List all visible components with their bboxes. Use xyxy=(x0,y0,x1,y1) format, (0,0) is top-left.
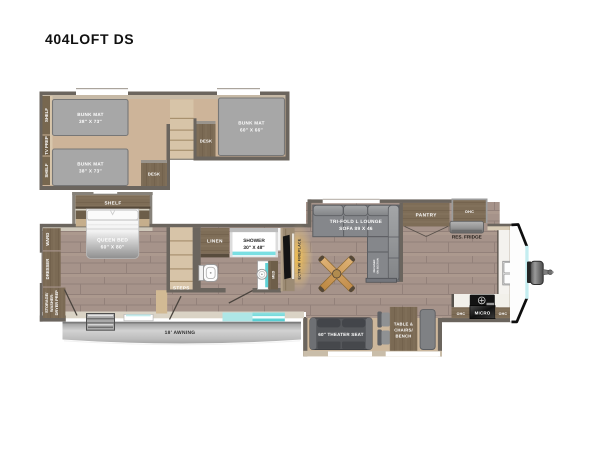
svg-text:MICRO: MICRO xyxy=(475,311,491,316)
svg-text:38″ X 73″: 38″ X 73″ xyxy=(79,169,102,174)
svg-text:SOFA 89 X 46: SOFA 89 X 46 xyxy=(339,226,373,231)
svg-text:OHC: OHC xyxy=(499,312,508,316)
svg-text:SHELF: SHELF xyxy=(44,163,49,177)
svg-text:RES. FRIDGE: RES. FRIDGE xyxy=(452,234,482,239)
svg-text:DRYER PREP: DRYER PREP xyxy=(54,290,59,316)
svg-text:LINEN: LINEN xyxy=(207,238,223,243)
svg-text:QUEEN BED: QUEEN BED xyxy=(97,238,128,244)
svg-text:CHAIRS/: CHAIRS/ xyxy=(394,328,413,333)
svg-text:OHC: OHC xyxy=(465,210,474,214)
svg-text:ECTR W/ FIREPLACE: ECTR W/ FIREPLACE xyxy=(298,238,302,279)
svg-text:DESK: DESK xyxy=(148,172,160,177)
svg-text:DRESSER: DRESSER xyxy=(45,258,50,280)
svg-text:404LOFT DS: 404LOFT DS xyxy=(45,31,134,47)
svg-text:BUNK MAT: BUNK MAT xyxy=(238,121,265,126)
svg-text:38″ X 73″: 38″ X 73″ xyxy=(79,119,102,124)
svg-text:SHOWER: SHOWER xyxy=(243,238,265,244)
svg-text:30″ X 48″: 30″ X 48″ xyxy=(243,245,265,251)
svg-text:WARD: WARD xyxy=(45,233,50,246)
svg-text:60″ THEATER SEAT: 60″ THEATER SEAT xyxy=(318,332,363,337)
svg-text:SHELF: SHELF xyxy=(104,201,121,206)
svg-text:TABLE &: TABLE & xyxy=(394,322,413,327)
svg-text:60″ X 80″: 60″ X 80″ xyxy=(101,245,125,251)
svg-text:ON SECTION: ON SECTION xyxy=(376,258,379,274)
svg-text:TV PREP: TV PREP xyxy=(44,136,49,155)
svg-text:BENCH: BENCH xyxy=(396,334,412,339)
svg-text:18’ AWNING: 18’ AWNING xyxy=(165,330,196,336)
svg-text:OHC: OHC xyxy=(457,312,466,316)
svg-text:MED: MED xyxy=(271,270,275,278)
svg-text:60″ X 66″: 60″ X 66″ xyxy=(240,128,263,133)
svg-text:SHELF: SHELF xyxy=(44,108,49,122)
svg-text:DESK: DESK xyxy=(200,139,212,144)
svg-text:BUNK MAT: BUNK MAT xyxy=(77,112,104,117)
svg-text:TRI-FOLD L LOUNGE: TRI-FOLD L LOUNGE xyxy=(330,219,382,224)
svg-text:BUNK MAT: BUNK MAT xyxy=(77,162,104,167)
svg-text:PANTRY: PANTRY xyxy=(416,213,438,218)
